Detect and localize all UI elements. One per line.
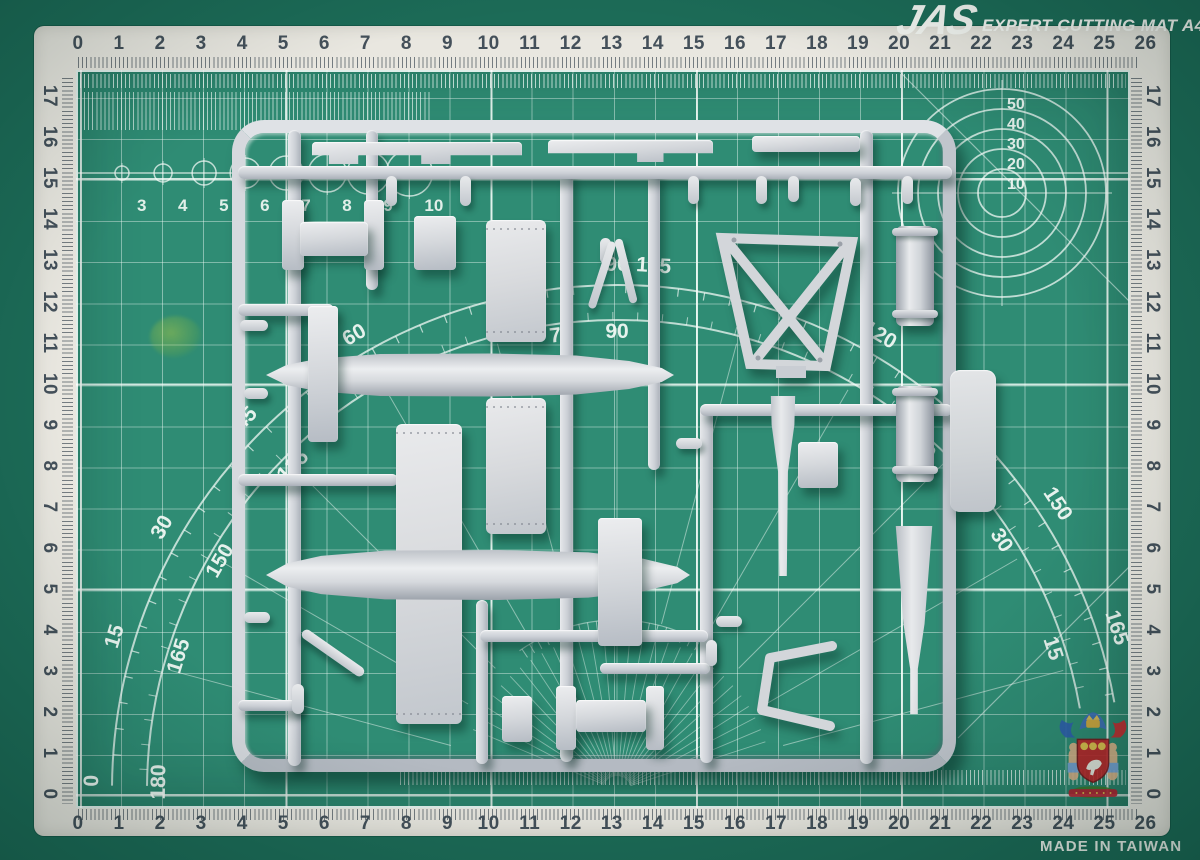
ruler-number: 7	[360, 813, 371, 835]
ruler-number: 4	[237, 33, 248, 55]
sprue-part-narrow-slab	[308, 306, 338, 442]
ruler-number: 9	[442, 33, 453, 55]
ruler-number: 6	[1141, 542, 1163, 553]
ruler-ticks-left	[62, 78, 73, 804]
ruler-number: 13	[601, 33, 623, 55]
ruler-number: 10	[38, 373, 60, 395]
ruler-number: 25	[1093, 813, 1115, 835]
sprue-runner-vertical	[560, 170, 573, 762]
sprue-runner-horizontal	[238, 474, 398, 486]
ruler-number: 14	[1141, 208, 1163, 230]
ruler-number: 4	[38, 624, 60, 635]
ruler-number: 16	[38, 126, 60, 148]
sprue-part-small-peg	[244, 612, 270, 623]
ruler-number: 23	[1011, 813, 1033, 835]
sprue-runner-horizontal	[600, 663, 710, 674]
sprue-part-small-peg	[756, 176, 767, 204]
sprue-part-wing-panel	[486, 398, 546, 534]
ruler-number: 19	[847, 33, 869, 55]
ruler-number: 16	[1141, 126, 1163, 148]
ruler-number: 17	[38, 85, 60, 107]
ruler-number: 18	[806, 813, 828, 835]
ruler-number: 5	[38, 583, 60, 594]
ruler-number: 11	[1141, 332, 1163, 353]
ruler-number: 3	[1141, 665, 1163, 676]
ruler-number: 17	[765, 33, 787, 55]
ruler-number: 0	[1141, 789, 1163, 800]
sprue-part-rack-post	[556, 686, 576, 750]
sprue-part-small-peg	[460, 176, 471, 206]
sprue-part-wing-panel	[486, 220, 546, 342]
ruler-number: 2	[38, 707, 60, 718]
sprue-part-small-peg	[386, 176, 397, 206]
ruler-number: 11	[519, 813, 540, 835]
ruler-number: 5	[278, 33, 289, 55]
sprue-runner-vertical	[648, 170, 660, 470]
sprue-runner-horizontal	[480, 630, 708, 642]
photo-cutting-mat-with-sprue: { "mat": { "brand": "JAS", "title": "EXP…	[0, 0, 1200, 860]
ruler-number: 10	[478, 33, 500, 55]
ruler-number: 14	[642, 33, 664, 55]
ruler-number: 1	[114, 813, 125, 835]
mat-title: EXPERT CUTTING MAT A4	[982, 16, 1200, 36]
ruler-number: 8	[401, 33, 412, 55]
sprue-part-cylinder-flange	[892, 388, 938, 396]
sprue-part-rack-post	[646, 686, 664, 750]
ruler-number: 9	[442, 813, 453, 835]
sprue-part-small-slab	[502, 696, 532, 742]
ruler-number: 6	[319, 33, 330, 55]
jas-logo: JAS	[892, 0, 980, 44]
ruler-number: 19	[847, 813, 869, 835]
ruler-number: 18	[806, 33, 828, 55]
paint-smudge	[150, 316, 202, 358]
ruler-number: 3	[38, 665, 60, 676]
ruler-number: 3	[196, 813, 207, 835]
ruler-number: 21	[929, 813, 951, 835]
ruler-number: 9	[1141, 419, 1163, 430]
ruler-number: 5	[1141, 583, 1163, 594]
sprue-part-nacelle-slab	[598, 518, 642, 646]
ruler-number: 20	[888, 813, 910, 835]
ruler-number: 15	[683, 813, 705, 835]
sprue-part-cylinder-flange	[892, 228, 938, 236]
sprue-outer-frame	[232, 120, 956, 772]
ruler-number: 13	[1141, 249, 1163, 271]
sprue-part-small-peg	[850, 178, 861, 206]
ruler-number: 12	[38, 290, 60, 312]
ruler-number: 9	[38, 419, 60, 430]
sprue-part-small-peg	[902, 176, 913, 204]
sprue-part-x-braced-frame	[714, 226, 860, 382]
sprue-part-u-frame	[738, 636, 838, 736]
ruler-number: 10	[478, 813, 500, 835]
made-in-taiwan-label: MADE IN TAIWAN	[1040, 838, 1182, 855]
ruler-number: 16	[724, 33, 746, 55]
ruler-ticks-top	[78, 57, 1140, 68]
ruler-number: 1	[1141, 748, 1163, 759]
ruler-number: 1	[114, 33, 125, 55]
ruler-number: 0	[72, 33, 83, 55]
ruler-number: 15	[683, 33, 705, 55]
ruler-number: 4	[1141, 624, 1163, 635]
sprue-runner-vertical	[860, 130, 873, 764]
fine-hatch-band-top	[80, 74, 1126, 88]
sprue-part-small-peg	[706, 640, 717, 666]
sprue-part-rack-slab	[576, 700, 646, 732]
ruler-number: 0	[72, 813, 83, 835]
ruler-number: 5	[278, 813, 289, 835]
ruler-number: 7	[1141, 501, 1163, 512]
heraldic-crest-watermark	[1054, 708, 1132, 802]
sprue-part-small-peg	[688, 176, 699, 204]
sprue-runner-horizontal	[238, 166, 952, 179]
ruler-number: 12	[560, 33, 582, 55]
sprue-part-cylinder-flange	[892, 310, 938, 318]
ruler-number: 7	[38, 501, 60, 512]
ruler-number: 11	[38, 332, 60, 353]
ruler-number: 7	[360, 33, 371, 55]
sprue-part-flat-tab	[950, 370, 996, 512]
ruler-number: 6	[319, 813, 330, 835]
sprue-part-small-peg	[716, 616, 742, 627]
ruler-number: 10	[1141, 373, 1163, 395]
sprue-part-flat-strip	[752, 136, 860, 152]
ruler-number: 11	[519, 33, 540, 55]
ruler-number: 0	[38, 789, 60, 800]
ruler-number: 13	[601, 813, 623, 835]
sprue-part-rack-slab	[300, 222, 368, 256]
ruler-number: 17	[765, 813, 787, 835]
ruler-number: 24	[1052, 813, 1074, 835]
ruler-number: 8	[1141, 460, 1163, 471]
ruler-number: 3	[196, 33, 207, 55]
sprue-part-small-peg	[788, 176, 799, 202]
ruler-number: 2	[1141, 707, 1163, 718]
brand-row: JAS EXPERT CUTTING MAT A4	[890, 0, 1200, 48]
ruler-number: 4	[237, 813, 248, 835]
ruler-number: 6	[38, 542, 60, 553]
ruler-number: 26	[1134, 813, 1156, 835]
ruler-number: 12	[560, 813, 582, 835]
sprue-part-small-peg	[240, 320, 268, 331]
ruler-number: 22	[970, 813, 992, 835]
ruler-number: 16	[724, 813, 746, 835]
ruler-number: 2	[155, 33, 166, 55]
ruler-number: 14	[642, 813, 664, 835]
fine-hatch-band-bottom	[400, 770, 1126, 785]
sprue-runner-vertical	[476, 600, 488, 764]
ruler-number: 8	[38, 460, 60, 471]
ruler-number: 8	[401, 813, 412, 835]
sprue-part-box	[798, 442, 838, 488]
ruler-number: 13	[38, 249, 60, 271]
ruler-number: 14	[38, 208, 60, 230]
sprue-part-cylinder-flange	[892, 466, 938, 474]
ruler-number: 15	[38, 167, 60, 189]
sprue-runner-horizontal	[238, 700, 298, 711]
sprue-runner-vertical	[700, 405, 713, 763]
sprue-part-small-peg	[292, 684, 304, 714]
ruler-number: 2	[155, 813, 166, 835]
ruler-number: 1	[38, 748, 60, 759]
sprue-part-small-peg	[676, 438, 702, 449]
sprue-part-small-slab	[414, 216, 456, 270]
sprue-part-small-peg	[244, 388, 268, 399]
ruler-number: 12	[1141, 290, 1163, 312]
ruler-number: 17	[1141, 85, 1163, 107]
ruler-number: 15	[1141, 167, 1163, 189]
